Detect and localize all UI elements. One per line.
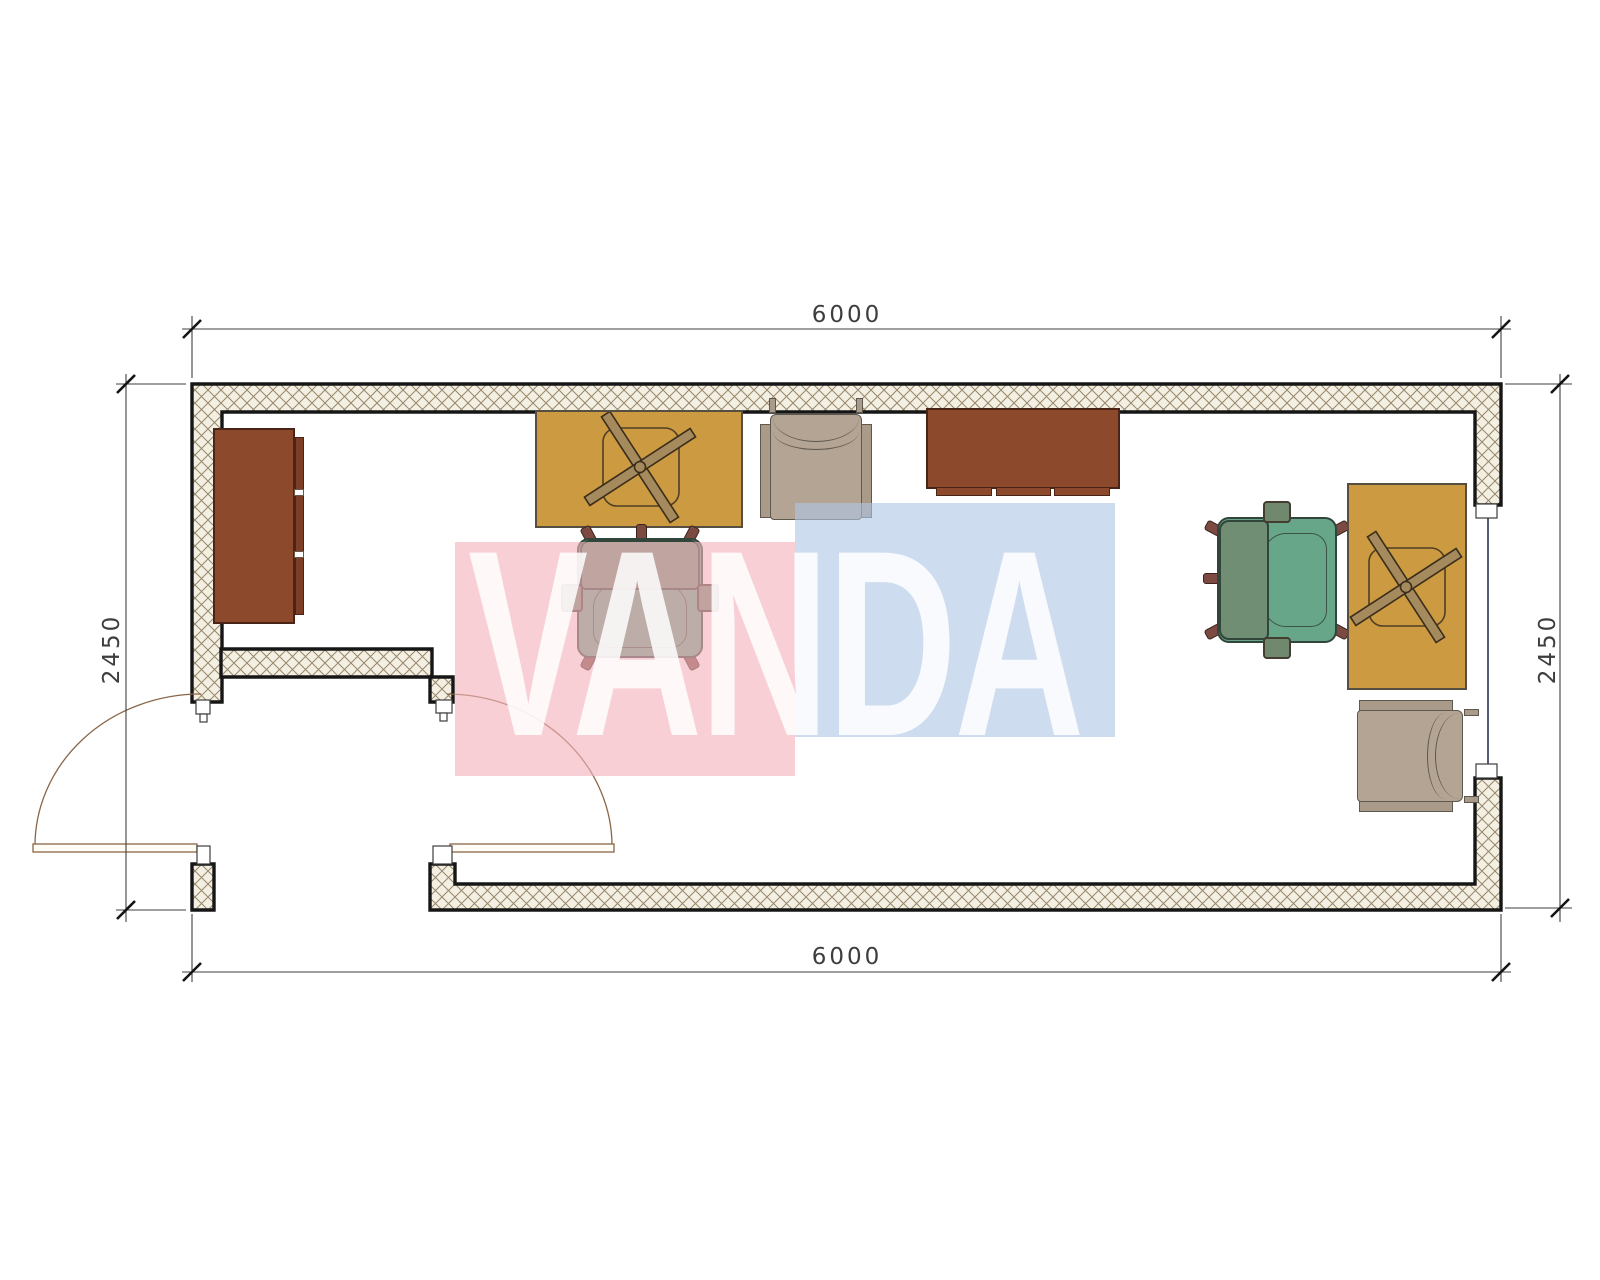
- window-frame-top: [1476, 504, 1497, 518]
- chair-armrest: [1263, 637, 1291, 659]
- chair-back-line: [773, 427, 859, 450]
- door-frame-stem-left: [200, 714, 207, 722]
- wall-vestibule: [221, 649, 453, 702]
- office-chair-right: [1217, 517, 1337, 643]
- door-leaf-left: [33, 844, 197, 852]
- cabinet-handle-icon: [294, 489, 304, 496]
- desk-pedestal-icon: [1349, 485, 1465, 688]
- door-frame-lower-left: [197, 846, 210, 864]
- chair-post-icon: [1464, 796, 1479, 803]
- sideboard-foot: [996, 487, 1051, 496]
- dimension-top: 6000: [782, 302, 912, 328]
- chair-seat: [1357, 710, 1463, 802]
- dimension-bottom: 6000: [782, 944, 912, 970]
- door-frame-upper-left: [196, 700, 210, 714]
- dimension-right: 2450: [1535, 584, 1561, 714]
- chair-post-icon: [769, 398, 776, 413]
- window-right: [1476, 504, 1497, 778]
- sideboard-foot: [936, 487, 992, 496]
- sideboard-foot: [1054, 487, 1110, 496]
- watermark-text: VANDA: [468, 512, 1082, 777]
- dimension-left: 2450: [99, 584, 125, 714]
- chair-backrest: [1219, 520, 1269, 640]
- sideboard-top: [926, 408, 1120, 489]
- tall-cabinet-left: [213, 428, 295, 624]
- guest-chair-bottom: [1357, 702, 1467, 810]
- door-frame-upper-right: [436, 700, 452, 713]
- wall-bottom-left-jamb: [192, 864, 214, 910]
- door-frame-stem-right: [440, 713, 447, 721]
- chair-post-icon: [856, 398, 863, 413]
- door-swing-arc-left: [35, 694, 201, 848]
- window-frame-bottom: [1476, 764, 1497, 778]
- door-leaf-right: [450, 844, 614, 852]
- chair-post-icon: [1464, 709, 1479, 716]
- door-frame-lower-right: [433, 846, 452, 864]
- tall-cabinet-left-doors: [295, 437, 304, 615]
- cabinet-handle-icon: [294, 551, 304, 558]
- chair-armrest: [1263, 501, 1291, 523]
- desk-right: [1347, 483, 1467, 690]
- floor-plan-canvas: VANDA 6000 6000 2450 2450: [0, 0, 1600, 1280]
- chair-back-line: [1427, 713, 1450, 799]
